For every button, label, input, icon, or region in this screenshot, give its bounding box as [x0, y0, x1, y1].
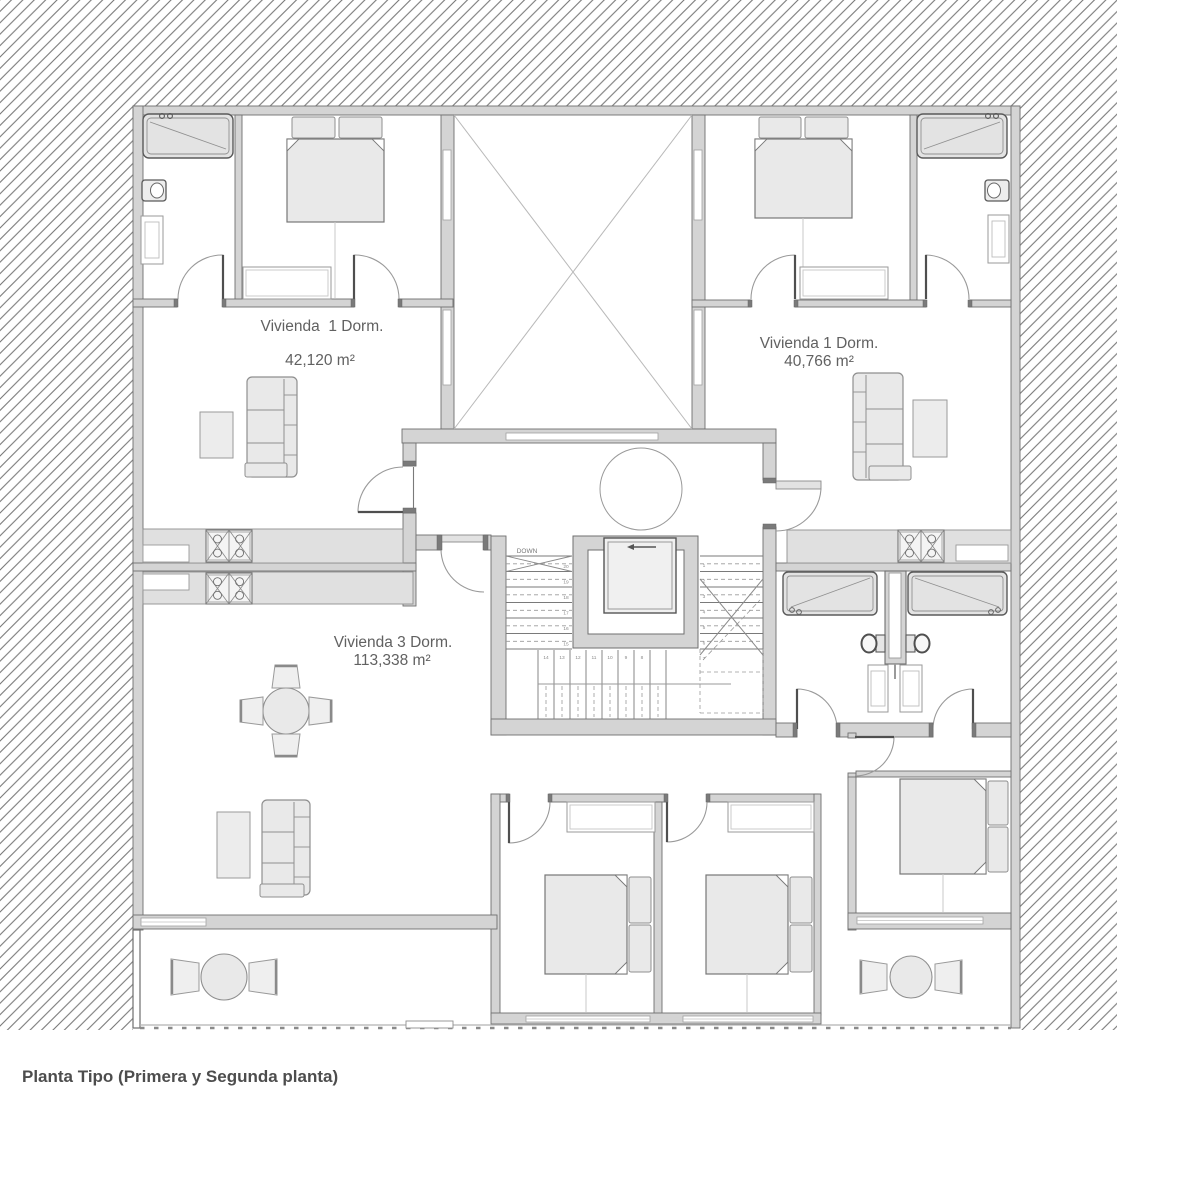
svg-text:5: 5	[703, 625, 706, 631]
svg-text:Planta Tipo (Primera y Segunda: Planta Tipo (Primera y Segunda planta)	[22, 1067, 338, 1086]
svg-text:6: 6	[703, 641, 706, 647]
svg-text:13: 13	[559, 655, 565, 661]
svg-text:12: 12	[575, 655, 581, 661]
svg-text:20: 20	[563, 564, 569, 570]
svg-text:10: 10	[607, 655, 613, 661]
svg-text:2: 2	[703, 579, 706, 585]
svg-text:1: 1	[703, 563, 706, 569]
svg-text:42,120 m²: 42,120 m²	[285, 352, 355, 369]
svg-text:Vivienda 1 Dorm.: Vivienda 1 Dorm.	[760, 335, 879, 352]
svg-text:DOWN: DOWN	[517, 548, 538, 555]
svg-text:7: 7	[703, 656, 706, 662]
svg-text:15: 15	[563, 642, 569, 648]
svg-text:3: 3	[703, 594, 706, 600]
svg-text:14: 14	[543, 655, 549, 661]
svg-text:17: 17	[563, 611, 569, 617]
svg-text:19: 19	[563, 580, 569, 586]
svg-text:11: 11	[592, 655, 597, 661]
svg-text:18: 18	[563, 595, 569, 601]
svg-text:113,338 m²: 113,338 m²	[353, 652, 430, 669]
svg-text:4: 4	[703, 610, 706, 616]
svg-text:9: 9	[625, 655, 628, 661]
svg-text:Vivienda 1 Dorm.: Vivienda 1 Dorm.	[261, 318, 384, 335]
svg-text:40,766 m²: 40,766 m²	[784, 353, 854, 370]
svg-text:Vivienda 3 Dorm.: Vivienda 3 Dorm.	[334, 634, 453, 651]
svg-text:16: 16	[563, 626, 569, 632]
svg-text:8: 8	[641, 655, 644, 661]
